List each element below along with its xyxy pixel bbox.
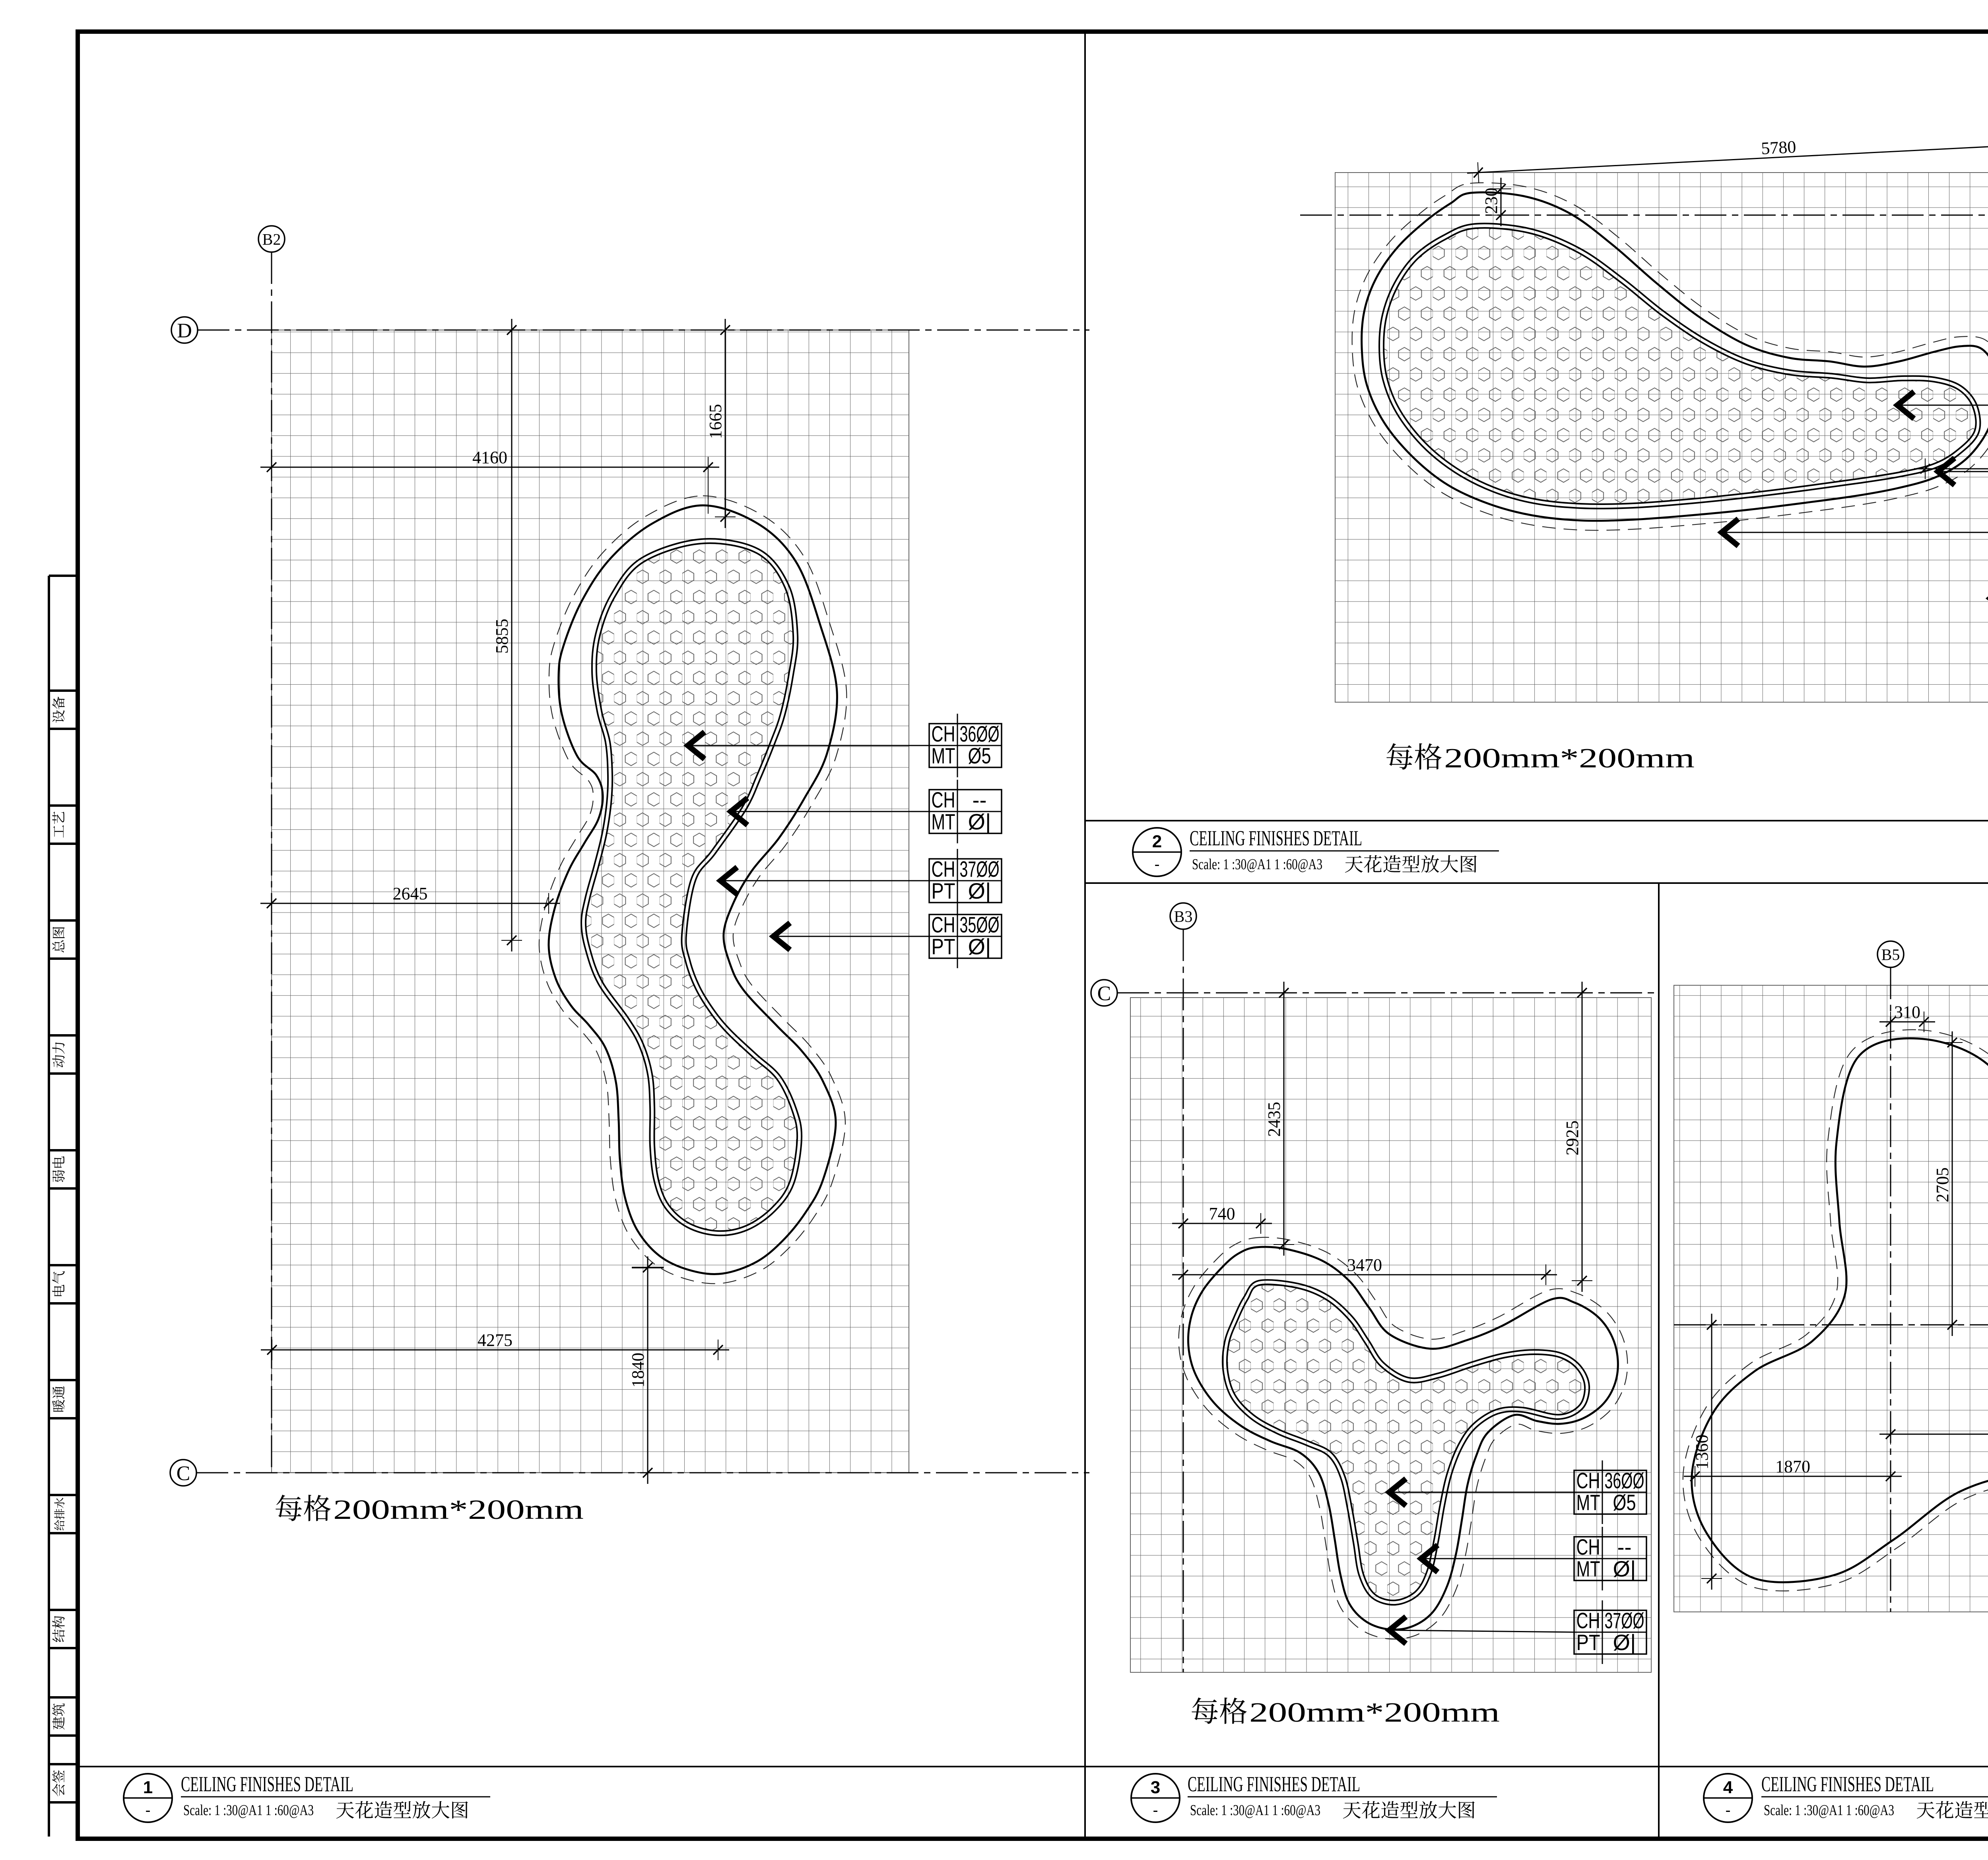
svg-text:1360: 1360 [1692, 1435, 1712, 1470]
svg-text:Scale: 1 :30@A1 1 :60@A3: Scale: 1 :30@A1 1 :60@A3 [183, 1802, 314, 1819]
svg-text:-: - [1153, 1802, 1158, 1819]
svg-text:CEILING FINISHES DETAIL: CEILING FINISHES DETAIL [181, 1772, 353, 1796]
svg-text:310: 310 [1894, 1002, 1920, 1022]
svg-text:1870: 1870 [1775, 1457, 1810, 1476]
svg-text:3: 3 [1151, 1778, 1160, 1797]
svg-text:740: 740 [1209, 1204, 1235, 1223]
svg-text:4: 4 [1723, 1778, 1733, 1797]
svg-text:Ø|: Ø| [968, 809, 991, 834]
svg-text:200mm*200mm: 200mm*200mm [333, 1495, 584, 1525]
svg-text:1665: 1665 [706, 404, 725, 439]
svg-text:-: - [1154, 856, 1159, 873]
svg-text:MT: MT [932, 743, 955, 768]
svg-text:CH: CH [932, 787, 955, 812]
svg-text:200mm*200mm: 200mm*200mm [1249, 1697, 1500, 1728]
svg-text:200mm*200mm: 200mm*200mm [1444, 743, 1695, 774]
svg-text:Scale: 1 :30@A1 1 :60@A3: Scale: 1 :30@A1 1 :60@A3 [1764, 1802, 1894, 1819]
svg-text:C: C [1097, 982, 1111, 1005]
svg-text:5855: 5855 [492, 619, 512, 654]
svg-text:Ø|: Ø| [968, 934, 991, 959]
svg-text:Ø|: Ø| [1613, 1630, 1636, 1655]
svg-text:2645: 2645 [393, 884, 428, 903]
svg-text:2: 2 [1152, 832, 1162, 851]
svg-text:1: 1 [143, 1778, 153, 1797]
svg-text:35ØØ: 35ØØ [960, 912, 1000, 937]
svg-text:4275: 4275 [478, 1330, 513, 1350]
svg-text:CH: CH [1576, 1608, 1600, 1633]
svg-text:2435: 2435 [1264, 1102, 1284, 1137]
svg-text:B2: B2 [262, 230, 281, 248]
svg-text:36ØØ: 36ØØ [1605, 1468, 1644, 1493]
svg-text:CH: CH [1576, 1468, 1600, 1493]
svg-text:2705: 2705 [1933, 1167, 1952, 1202]
svg-text:MT: MT [1576, 1490, 1600, 1515]
svg-text:CEILING FINISHES DETAIL: CEILING FINISHES DETAIL [1190, 826, 1362, 850]
svg-text:PT: PT [932, 934, 955, 959]
svg-text:C: C [177, 1462, 190, 1485]
svg-text:2925: 2925 [1563, 1120, 1582, 1155]
svg-text:CH: CH [932, 912, 955, 937]
svg-text:B5: B5 [1881, 946, 1900, 963]
svg-text:CH: CH [932, 856, 955, 881]
svg-text:-: - [145, 1802, 150, 1819]
svg-text:Ø5: Ø5 [968, 743, 991, 768]
svg-text:--: -- [1617, 1534, 1632, 1559]
svg-text:B3: B3 [1174, 907, 1193, 925]
svg-text:37ØØ: 37ØØ [1605, 1608, 1644, 1633]
svg-text:PT: PT [932, 878, 955, 903]
svg-text:-: - [1725, 1802, 1730, 1819]
svg-text:MT: MT [932, 809, 955, 834]
svg-text:Scale: 1 :30@A1 1 :60@A3: Scale: 1 :30@A1 1 :60@A3 [1190, 1802, 1320, 1819]
svg-text:37ØØ: 37ØØ [960, 856, 1000, 881]
svg-text:4160: 4160 [472, 448, 507, 467]
svg-text:Ø5: Ø5 [1613, 1490, 1636, 1515]
svg-text:CH: CH [1576, 1534, 1600, 1559]
svg-text:--: -- [973, 787, 987, 812]
svg-text:230: 230 [1481, 188, 1501, 214]
svg-text:CEILING FINISHES DETAIL: CEILING FINISHES DETAIL [1188, 1772, 1360, 1796]
svg-text:D: D [177, 320, 192, 342]
svg-text:CH: CH [932, 721, 955, 746]
svg-text:5780: 5780 [1761, 137, 1796, 158]
svg-text:PT: PT [1576, 1630, 1600, 1655]
svg-text:MT: MT [1576, 1556, 1600, 1581]
svg-text:Ø|: Ø| [1613, 1556, 1636, 1581]
svg-text:Scale: 1 :30@A1 1 :60@A3: Scale: 1 :30@A1 1 :60@A3 [1192, 856, 1322, 873]
svg-text:1840: 1840 [628, 1353, 648, 1388]
svg-text:CEILING FINISHES DETAIL: CEILING FINISHES DETAIL [1761, 1772, 1934, 1796]
svg-text:Ø|: Ø| [968, 878, 991, 903]
svg-text:3470: 3470 [1347, 1255, 1382, 1275]
svg-text:36ØØ: 36ØØ [960, 721, 1000, 746]
